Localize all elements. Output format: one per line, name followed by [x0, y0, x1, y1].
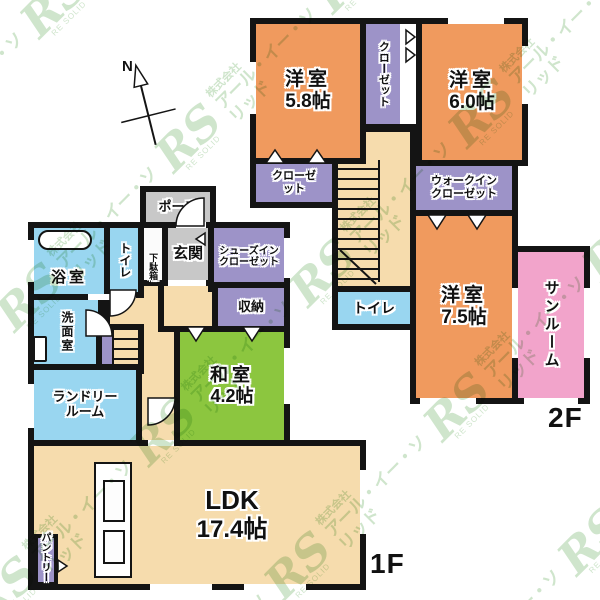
ldk-size: 17.4帖	[197, 516, 268, 544]
company-logo: RS	[309, 0, 386, 17]
shoe-cabinet-label: 下駄箱	[148, 253, 158, 280]
laundry-line2: ルーム	[66, 405, 105, 420]
opening-hall-ldk	[148, 440, 174, 446]
shoes-in-closet-line1: シューズイン	[219, 246, 279, 258]
watermark-logo-wrap: RS RE SOLID	[553, 503, 600, 584]
watermark-brand: アール・イー・ソリッド	[0, 22, 49, 151]
window-laundry-left	[28, 384, 34, 428]
room-toilet-2f: トイレ	[332, 286, 416, 330]
room-wic: ウォークイン クローゼット	[410, 160, 518, 216]
opening-porch-entrance	[176, 222, 206, 228]
window-japanese-right	[284, 348, 290, 404]
bed58-name: 洋室	[285, 69, 331, 91]
watermark-text: 株式会社 アール・イー・ソリッド	[0, 307, 24, 445]
room-entrance: 玄関	[162, 222, 214, 286]
room-storage: 収納	[212, 282, 290, 332]
watermark-brand: アール・イー・ソリッド	[457, 560, 586, 600]
sink-icon	[33, 336, 47, 362]
bed60-size: 6.0帖	[449, 92, 494, 114]
japanese-room-size: 4.2帖	[210, 386, 253, 407]
compass-icon	[109, 58, 183, 151]
wic-line2: クローゼット	[431, 188, 497, 201]
watermark-company: 株式会社	[0, 14, 22, 125]
window-ldk-bottom-2	[244, 584, 306, 590]
watermark-brand: アール・イー・ソリッド	[0, 316, 24, 445]
window-ldk-right	[360, 470, 366, 534]
ldk-name: LDK	[205, 486, 258, 516]
floor2-label: 2F	[548, 402, 583, 434]
toilet-1f-label: トイレ	[117, 242, 131, 278]
company-logo: RS	[16, 0, 93, 42]
opening-washroom	[88, 294, 112, 300]
wic-line1: ウォークイン	[431, 175, 497, 188]
watermark-unit: RS RE SOLID 株式会社 アール・イー・ソリッド	[0, 0, 98, 258]
washroom-label: 洗面室	[59, 311, 73, 353]
window-shoes-closet-right	[284, 238, 290, 278]
bed75-size: 7.5帖	[441, 307, 486, 329]
storage-label: 収納	[238, 300, 264, 315]
kitchen-stove-icon	[103, 530, 125, 564]
closet-top-label: クローゼット	[377, 41, 390, 107]
sunroom-label: サンルーム	[542, 280, 559, 370]
shoes-in-closet-line2: クローゼット	[219, 257, 279, 269]
watermark-logo-wrap: RS RE SOLID	[150, 100, 231, 181]
room-closet-small: クローゼット	[250, 158, 338, 208]
japanese-room-name: 和室	[210, 365, 254, 386]
company-logo-sub: RE SOLID	[186, 135, 223, 172]
watermark-text: 株式会社 アール・イー・ソリッド	[448, 551, 586, 600]
window-sunroom-right	[584, 288, 590, 358]
compass-north-label: N	[122, 58, 133, 75]
entrance-label: 玄関	[173, 245, 203, 262]
floor1-label: 1F	[370, 548, 405, 580]
room-bed58: 洋室 5.8帖	[250, 18, 366, 164]
stairs-2f-treads	[338, 160, 380, 282]
company-logo: RS	[553, 503, 600, 580]
watermark-text: 株式会社 アール・イー・ソリッド	[0, 14, 49, 152]
room-bed60: 洋室 6.0帖	[416, 18, 528, 166]
bathtub-icon	[38, 230, 92, 250]
floorplan-canvas: ポーチ 浴室 トイレ 下駄箱 玄関 シューズイン クローゼット 洗面室 収納 和…	[0, 0, 600, 600]
company-logo-sub: RE SOLID	[589, 538, 600, 575]
porch-label: ポーチ	[158, 200, 197, 215]
opening-entrance-hall	[168, 280, 206, 286]
watermark-logo-wrap: RS RE SOLID	[16, 0, 97, 47]
closet-small-label: クローゼット	[269, 170, 319, 195]
bed58-size: 5.8帖	[285, 91, 330, 113]
room-bed75: 洋室 7.5帖	[410, 210, 518, 404]
kitchen-counter-icon	[94, 462, 132, 578]
laundry-line1: ランドリー	[52, 390, 117, 405]
stairs-1f-treads	[112, 330, 138, 368]
opening-toilet-1f	[112, 292, 136, 298]
bed60-name: 洋室	[449, 70, 495, 92]
room-laundry: ランドリー ルーム	[28, 364, 142, 446]
watermark-company: 株式会社	[448, 551, 559, 600]
window-bed75-bottom	[420, 398, 476, 404]
room-ldk: LDK 17.4帖	[28, 440, 366, 590]
window-bed60-top	[448, 18, 504, 24]
company-logo-sub: RE SOLID	[345, 0, 382, 13]
bed75-name: 洋室	[441, 285, 487, 307]
window-bath-left	[28, 240, 34, 282]
watermark-unit: RS RE SOLID 株式会社 アール・イー・ソリッド	[551, 0, 600, 49]
pantry-label: パントリー	[37, 532, 52, 582]
window-bed60-right	[522, 46, 528, 104]
bath-label: 浴室	[51, 269, 87, 286]
room-sunroom: サンルーム	[512, 246, 590, 404]
company-logo-sub: RE SOLID	[51, 1, 88, 38]
window-ldk-bottom-1	[150, 584, 212, 590]
kitchen-sink-icon	[103, 480, 125, 522]
room-japanese: 和室 4.2帖	[174, 326, 290, 446]
company-logo: RS	[150, 100, 227, 177]
toilet-2f-label: トイレ	[353, 300, 395, 316]
window-bed58-left	[250, 62, 256, 114]
window-sunroom-left	[512, 288, 518, 358]
watermark-unit: RS RE SOLID 株式会社 アール・イー・ソリッド	[0, 0, 258, 98]
company-logo-sub: RE SOLID	[454, 404, 491, 441]
